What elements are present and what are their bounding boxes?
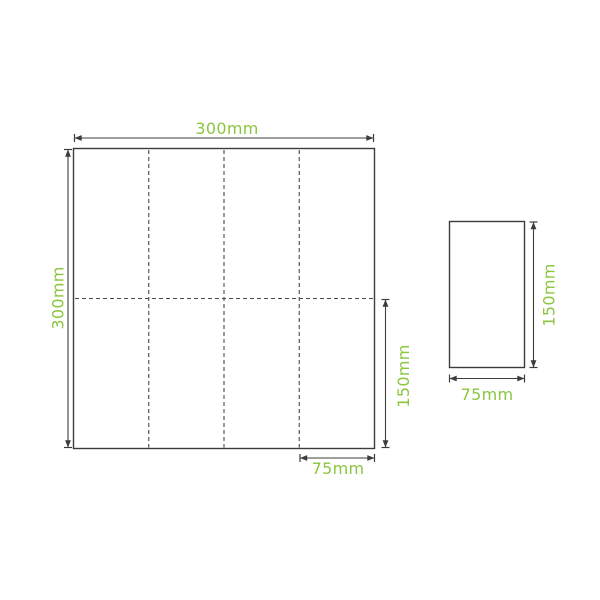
dim-label-unfolded-width: 300mm [195,119,258,138]
dim-label-folded-width: 75mm [461,385,514,404]
diagram-canvas: 300mm 300mm 150mm 75mm 150mm 75mm [0,0,600,600]
napkin-dimension-diagram: 300mm 300mm 150mm 75mm 150mm 75mm [0,0,600,600]
dim-label-folded-height: 150mm [540,263,559,326]
dim-label-unfolded-quarter-width: 75mm [312,459,365,478]
folded-sheet-outline [450,222,525,368]
dim-label-unfolded-half-height: 150mm [394,344,413,407]
dim-label-unfolded-height: 300mm [49,266,68,329]
